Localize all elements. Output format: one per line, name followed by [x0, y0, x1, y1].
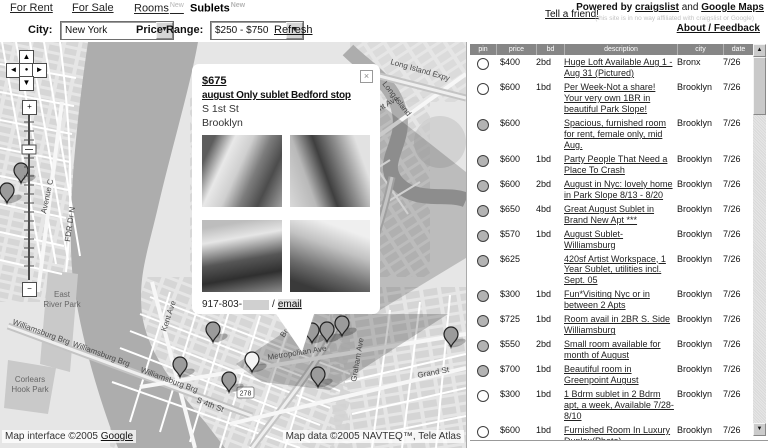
tab-for-sale[interactable]: For Sale: [72, 2, 114, 14]
listing-photo[interactable]: [290, 135, 370, 207]
listing-price: $600: [496, 179, 536, 190]
listing-date: 7/26: [723, 179, 753, 190]
refresh-link[interactable]: Refresh: [274, 24, 313, 36]
listing-row: $600 1bd Furnished Room In Luxury Duplex…: [470, 423, 753, 440]
about-feedback-link[interactable]: About / Feedback: [677, 23, 760, 34]
listings-rows: $400 2bd Huge Loft Available Aug 1 - Aug…: [470, 55, 753, 440]
listing-price: $550: [496, 339, 536, 350]
zoom-in-button[interactable]: +: [22, 100, 37, 115]
listing-row: $600 1bd Party People That Need a Place …: [470, 152, 753, 177]
listing-link[interactable]: Room avail in 2BR S. Side Williamsburg: [564, 314, 670, 335]
listing-row: $600 1bd Per Week-Not a share! Your very…: [470, 80, 753, 116]
listing-row: $700 1bd Beautiful room in Greenpoint Au…: [470, 362, 753, 387]
listing-popup: × $675 august Only sublet Bedford stop S…: [192, 64, 380, 314]
map-attribution-left: Map interface ©2005 Google: [2, 430, 136, 443]
pin-indicator[interactable]: [477, 205, 489, 217]
disclaimer-text: (this site is in no way affiliated with …: [595, 15, 754, 22]
pin-indicator[interactable]: [477, 58, 489, 70]
listing-date: 7/26: [723, 57, 753, 68]
listing-link[interactable]: August in Nyc: lovely home in Park Slope…: [564, 179, 673, 200]
zoom-slider[interactable]: [20, 114, 38, 280]
listing-link[interactable]: Furnished Room In Luxury Duplex(Photo): [564, 425, 670, 440]
tab-for-rent[interactable]: For Rent: [10, 2, 53, 14]
pin-indicator[interactable]: [477, 390, 489, 402]
map-attribution-right: Map data ©2005 NAVTEQ™, Tele Atlas: [283, 430, 464, 443]
listing-city: Brooklyn: [677, 314, 723, 325]
listing-row: $570 1bd August Sublet- Williamsburg Bro…: [470, 227, 753, 252]
city-label: City:: [28, 24, 52, 36]
listing-link[interactable]: 1 Bdrm sublet in 2 Bdrm apt, a week, Ava…: [564, 389, 674, 421]
listing-city: Brooklyn: [677, 389, 723, 400]
phone-redacted: [243, 300, 269, 310]
listing-bedrooms: 1bd: [536, 229, 564, 240]
pan-down-button[interactable]: ▼: [19, 76, 34, 91]
listing-bedrooms: 1bd: [536, 82, 564, 93]
listing-price: $725: [496, 314, 536, 325]
listing-row: $625 420sf Artist Workspace, 1 Year Subl…: [470, 252, 753, 288]
pin-indicator[interactable]: [477, 83, 489, 95]
listing-date: 7/26: [723, 289, 753, 300]
listing-price: $600: [496, 425, 536, 436]
listing-city: Brooklyn: [677, 154, 723, 165]
listing-date: 7/26: [723, 425, 753, 436]
pin-indicator[interactable]: [477, 230, 489, 242]
pin-indicator[interactable]: [477, 255, 489, 267]
listing-date: 7/26: [723, 82, 753, 93]
popup-city: Brooklyn: [202, 117, 370, 129]
listing-city: Brooklyn: [677, 179, 723, 190]
listing-bedrooms: 2bd: [536, 179, 564, 190]
email-link[interactable]: email: [278, 299, 302, 310]
listing-city: Bronx: [677, 57, 723, 68]
listing-photo[interactable]: [202, 135, 282, 207]
listing-link[interactable]: Per Week-Not a share! Your very own 1BR …: [564, 82, 655, 114]
pin-indicator[interactable]: [477, 155, 489, 167]
scrollbar-thumb[interactable]: [753, 57, 766, 115]
listing-date: 7/26: [723, 254, 753, 265]
pin-indicator[interactable]: [477, 290, 489, 302]
phone-number: 917-803-: [202, 299, 242, 310]
map-pane[interactable]: Long Island Expy Long Island Greenpoint …: [0, 42, 466, 448]
listing-city: Brooklyn: [677, 254, 723, 265]
listing-bedrooms: 2bd: [536, 57, 564, 68]
table-header: pin price bd description city date: [470, 44, 753, 55]
listing-price: $300: [496, 289, 536, 300]
listing-date: 7/26: [723, 339, 753, 350]
listing-city: Brooklyn: [677, 82, 723, 93]
listing-bedrooms: 4bd: [536, 204, 564, 215]
listing-row: $300 1bd 1 Bdrm sublet in 2 Bdrm apt, a …: [470, 387, 753, 423]
pin-indicator[interactable]: [477, 365, 489, 377]
pin-indicator[interactable]: [477, 315, 489, 327]
listing-photo[interactable]: [290, 220, 370, 292]
listing-price: $650: [496, 204, 536, 215]
google-attribution-link[interactable]: Google: [101, 431, 133, 442]
top-bar: For Rent For Sale RoomsNew SubletsNew Ci…: [0, 0, 768, 42]
google-maps-link[interactable]: Google Maps: [701, 2, 764, 13]
map-label: East: [54, 290, 71, 299]
listing-price: $600: [496, 118, 536, 129]
popup-contact: 917-803- / email: [202, 299, 370, 310]
new-badge: New: [170, 2, 184, 9]
listing-city: Brooklyn: [677, 364, 723, 375]
listing-price: $300: [496, 389, 536, 400]
pin-indicator[interactable]: [477, 180, 489, 192]
pin-indicator[interactable]: [477, 340, 489, 352]
listing-price: $600: [496, 154, 536, 165]
listing-city: Brooklyn: [677, 339, 723, 350]
listing-city: Brooklyn: [677, 229, 723, 240]
listing-city: Brooklyn: [677, 425, 723, 436]
listing-row: $550 2bd Small room available for month …: [470, 337, 753, 362]
pan-right-button[interactable]: ►: [32, 63, 47, 78]
listing-date: 7/26: [723, 204, 753, 215]
listing-price: $570: [496, 229, 536, 240]
listing-link[interactable]: Great August Sublet in Brand New Apt ***: [564, 204, 654, 225]
listing-link[interactable]: Huge Loft Available Aug 1 - Aug 31 (Pict…: [564, 57, 672, 78]
zoom-out-button[interactable]: −: [22, 282, 37, 297]
listing-bedrooms: 2bd: [536, 339, 564, 350]
listing-date: 7/26: [723, 118, 753, 129]
svg-text:278: 278: [240, 391, 252, 398]
listing-link[interactable]: Small room available for month of August: [564, 339, 661, 360]
listing-row: $600 2bd August in Nyc: lovely home in P…: [470, 177, 753, 202]
listing-link[interactable]: Spacious, furnished room for rent, femal…: [564, 118, 666, 150]
popup-price-link[interactable]: $675: [202, 75, 226, 87]
listing-link[interactable]: Fun*Visiting Nyc or in between 2 Apts: [564, 289, 650, 310]
listing-photo[interactable]: [202, 220, 282, 292]
listing-bedrooms: 1bd: [536, 154, 564, 165]
listing-bedrooms: 1bd: [536, 389, 564, 400]
listing-date: 7/26: [723, 229, 753, 240]
map-label: Corlears: [15, 375, 45, 384]
listing-city: Brooklyn: [677, 204, 723, 215]
new-badge: New: [231, 2, 245, 9]
listing-row: $300 1bd Fun*Visiting Nyc or in between …: [470, 287, 753, 312]
pin-indicator[interactable]: [477, 119, 489, 131]
scroll-down-icon[interactable]: ▼: [753, 423, 766, 436]
listing-bedrooms: 1bd: [536, 364, 564, 375]
listing-row: $650 4bd Great August Sublet in Brand Ne…: [470, 202, 753, 227]
close-icon[interactable]: ×: [360, 70, 373, 83]
tab-rooms[interactable]: RoomsNew: [134, 2, 184, 15]
listing-city: Brooklyn: [677, 118, 723, 129]
listing-link[interactable]: Party People That Need a Place To Crash: [564, 154, 667, 175]
listing-row: $400 2bd Huge Loft Available Aug 1 - Aug…: [470, 55, 753, 80]
price-range-label: Price Range:: [136, 24, 203, 36]
craigslist-link[interactable]: craigslist: [635, 2, 679, 13]
listing-bedrooms: 1bd: [536, 289, 564, 300]
pin-indicator[interactable]: [477, 426, 489, 438]
popup-address: S 1st St: [202, 103, 370, 115]
listings-scrollbar[interactable]: ▲ ▼: [753, 44, 766, 436]
listing-date: 7/26: [723, 364, 753, 375]
listing-bedrooms: 1bd: [536, 314, 564, 325]
listing-row: $600 Spacious, furnished room for rent, …: [470, 116, 753, 152]
photo-grid: [202, 135, 370, 292]
listing-link[interactable]: 420sf Artist Workspace, 1 Year Sublet, u…: [564, 254, 666, 286]
listing-date: 7/26: [723, 314, 753, 325]
powered-by: Powered by craigslist and Google Maps: [576, 2, 764, 13]
scroll-up-icon[interactable]: ▲: [753, 44, 766, 57]
map-label: Hook Park: [11, 385, 49, 394]
listing-date: 7/26: [723, 389, 753, 400]
listing-date: 7/26: [723, 154, 753, 165]
listing-price: $625: [496, 254, 536, 265]
map-label: River Park: [43, 300, 81, 309]
tab-sublets[interactable]: SubletsNew: [190, 2, 245, 15]
listing-link[interactable]: August Sublet- Williamsburg: [564, 229, 623, 250]
listing-city: Brooklyn: [677, 289, 723, 300]
listings-panel: pin price bd description city date $400 …: [470, 42, 768, 441]
listing-price: $600: [496, 82, 536, 93]
listing-link[interactable]: Beautiful room in Greenpoint August: [564, 364, 639, 385]
listing-price: $400: [496, 57, 536, 68]
listing-price: $700: [496, 364, 536, 375]
popup-title-link[interactable]: august Only sublet Bedford stop: [202, 90, 370, 101]
listing-bedrooms: 1bd: [536, 425, 564, 436]
listing-row: $725 1bd Room avail in 2BR S. Side Willi…: [470, 312, 753, 337]
